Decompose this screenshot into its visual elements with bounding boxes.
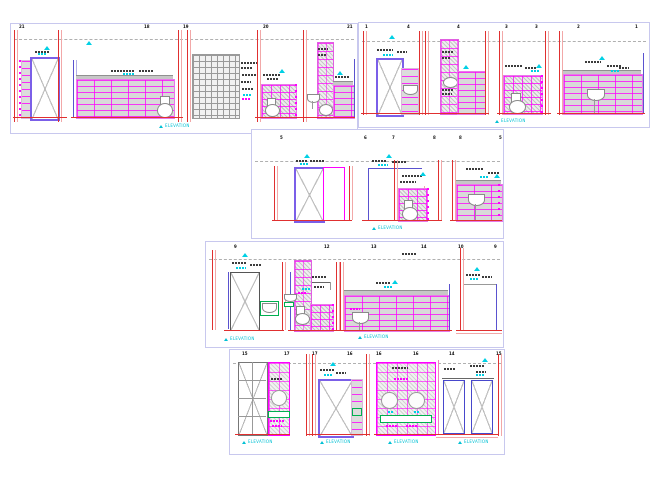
dimension-text <box>139 70 153 72</box>
grid-bubble: 5 <box>280 136 283 140</box>
washbasin <box>307 94 320 103</box>
caption-label: ELEVATION <box>248 440 273 444</box>
cad-elevation-sheet: 21 18 19 20 21 <box>0 0 650 500</box>
grid-bubble: 8 <box>459 136 462 140</box>
dimension-text <box>466 274 480 276</box>
grid-bubble: 18 <box>144 25 150 29</box>
dimension-text <box>402 175 422 177</box>
washbasin <box>403 85 418 95</box>
dimension-text <box>466 168 484 170</box>
elevation-caption: ELEVATION <box>159 124 190 128</box>
dimension-text <box>242 74 256 76</box>
partition-panel <box>323 167 345 221</box>
elevation-marker-icon <box>242 441 246 444</box>
level-label <box>38 53 47 55</box>
wall-axis-line <box>498 354 502 436</box>
wall-corner-line <box>438 360 439 434</box>
dimension-text <box>320 369 334 371</box>
caption-label: ELEVATION <box>165 124 190 128</box>
dimension-text <box>442 57 451 59</box>
grid-bubble: 4 <box>457 25 460 29</box>
wall-axis-line <box>312 354 316 436</box>
dimension-text <box>585 61 601 63</box>
floor-line <box>423 113 489 114</box>
level-marker-icon <box>337 71 343 75</box>
level-label <box>123 73 135 75</box>
floor-line <box>361 113 423 114</box>
mirror <box>381 392 398 409</box>
dimension-text <box>271 378 283 380</box>
grid-bubble: 9 <box>234 245 237 249</box>
magenta-dimension-text <box>394 378 408 380</box>
wall-axis-line <box>306 354 310 436</box>
level-label <box>300 163 308 165</box>
grid-bubble: 6 <box>364 136 367 140</box>
dimension-text <box>312 276 326 278</box>
caption-label: ELEVATION <box>394 440 419 444</box>
grid-bubble: 17 <box>284 352 290 356</box>
washbasin <box>468 194 485 206</box>
level-marker-icon <box>279 69 285 73</box>
tile-ticks <box>541 75 543 113</box>
dimension-text <box>336 372 346 374</box>
cabinet-divider <box>238 416 266 417</box>
dimension-text <box>335 76 349 78</box>
wall-edge-line <box>643 53 644 113</box>
basin-pedestal <box>594 99 595 113</box>
grid-bubble: 21 <box>19 25 25 29</box>
dimension-text <box>442 89 454 91</box>
dimension-text <box>397 51 407 53</box>
wall-edge-line <box>496 284 497 330</box>
cabinet <box>238 362 268 436</box>
elevation-marker-icon <box>159 125 163 128</box>
grid-bubble: 15 <box>242 352 248 356</box>
grid-bubble: 8 <box>433 136 436 140</box>
floor-line <box>224 330 284 331</box>
dimension-text <box>263 74 281 76</box>
magenta-dimension-text <box>298 292 306 294</box>
mirror <box>408 392 425 409</box>
level-label <box>383 54 393 56</box>
dimension-text <box>377 49 393 51</box>
dimension-text <box>250 264 262 266</box>
grid-bubble: 3 <box>505 25 508 29</box>
level-label <box>611 70 619 72</box>
caption-label: ELEVATION <box>378 226 403 230</box>
wall-axis-line <box>363 31 367 115</box>
floor-line <box>338 330 452 331</box>
elevation-panel-5: 15 17 17 16 16 16 14 15 ELEVATION <box>229 349 505 455</box>
toilet-bowl <box>443 77 458 88</box>
grid-bubble: 1 <box>635 25 638 29</box>
wall-axis-line <box>545 31 549 115</box>
level-marker-icon <box>389 35 395 39</box>
washbasin <box>262 303 277 313</box>
floor-line <box>255 117 301 118</box>
floor-line <box>288 330 338 331</box>
dimension-text <box>372 160 386 162</box>
shelf <box>268 411 290 418</box>
basin-pedestal <box>359 322 360 330</box>
toilet-bowl <box>265 104 280 117</box>
dimension-text <box>318 48 328 50</box>
dimension-text <box>619 67 629 69</box>
wall-axis-line <box>187 30 191 122</box>
elevation-panel-1: 21 18 19 20 21 <box>10 23 358 134</box>
elevation-caption: ELEVATION <box>320 440 351 444</box>
basin-pedestal <box>475 204 476 220</box>
washbasin <box>587 89 605 101</box>
level-marker-icon <box>386 154 392 158</box>
level-label <box>236 267 246 269</box>
elevation-caption: ELEVATION <box>388 440 419 444</box>
dimension-text <box>241 81 251 83</box>
dimension-text <box>444 368 456 370</box>
dimension-text <box>232 262 246 264</box>
elevation-panel-4: 9 12 13 14 10 9 <box>205 241 504 348</box>
caption-label: ELEVATION <box>326 440 351 444</box>
tile-grid-wall <box>192 54 240 119</box>
washbasin <box>284 294 297 302</box>
dimension-text <box>505 65 523 67</box>
elevation-caption: ELEVATION <box>358 335 389 339</box>
level-label <box>531 70 539 72</box>
level-label <box>480 176 488 178</box>
tile-wall <box>310 304 334 332</box>
wall-axis-line <box>366 354 370 436</box>
magenta-dimension-text <box>406 425 418 427</box>
wall-edge-line <box>228 272 229 329</box>
level-label <box>324 374 332 376</box>
wall-edge-line <box>354 59 355 117</box>
level-marker-icon <box>463 65 469 69</box>
caption-label: ELEVATION <box>364 335 389 339</box>
door <box>376 58 404 117</box>
elevation-marker-icon <box>358 336 362 339</box>
level-marker-icon <box>392 280 398 284</box>
elevation-caption: ELEVATION <box>224 337 255 341</box>
floor-line <box>272 220 352 221</box>
grid-bubble: 5 <box>499 136 502 140</box>
level-marker-icon <box>536 64 542 68</box>
door <box>294 167 325 223</box>
toilet-bowl <box>295 313 310 325</box>
elevation-caption: ELEVATION <box>458 440 489 444</box>
dimension-text <box>310 160 324 162</box>
level-marker-icon <box>494 174 500 178</box>
grid-bubble: 14 <box>449 352 455 356</box>
elevation-marker-icon <box>224 338 228 341</box>
shelf <box>380 415 432 423</box>
wall-axis-line <box>419 31 423 115</box>
caption-label: ELEVATION <box>464 440 489 444</box>
grid-bubble: 16 <box>376 352 382 356</box>
floor-line <box>436 434 498 438</box>
dimension-text <box>296 160 308 162</box>
level-marker-icon <box>599 56 605 60</box>
wall-axis-line <box>178 30 182 122</box>
elevation-marker-icon <box>320 441 324 444</box>
ceiling-dash-line <box>209 259 500 260</box>
magenta-dimension-text <box>350 308 360 310</box>
dimension-text <box>402 253 416 255</box>
grid-bubble: 1 <box>365 25 368 29</box>
dimension-leader <box>312 282 330 283</box>
shelf <box>352 408 362 416</box>
grid-bubble: 7 <box>392 136 395 140</box>
magenta-dimension-text <box>270 420 284 422</box>
wall-axis-line <box>303 30 307 122</box>
cabinet-divider <box>238 380 266 381</box>
dimension-text <box>242 88 254 90</box>
grid-bubble: 16 <box>413 352 419 356</box>
elevation-caption: ELEVATION <box>495 119 526 123</box>
grid-bubble: 4 <box>407 25 410 29</box>
level-marker-icon <box>474 267 480 271</box>
basin-pedestal <box>312 101 313 109</box>
dimension-text <box>314 286 324 288</box>
tile-wall <box>457 71 486 115</box>
elevation-caption: ELEVATION <box>242 440 273 444</box>
dimension-leader <box>330 282 331 290</box>
wall-edge-line <box>464 284 496 285</box>
door <box>471 380 493 434</box>
wall-axis-line <box>274 166 278 220</box>
door-head-line <box>442 378 494 379</box>
toilet-bowl <box>157 103 173 118</box>
level-label <box>470 278 478 280</box>
tile-ticks <box>427 188 429 220</box>
grid-bubble: 19 <box>183 25 189 29</box>
dimension-text <box>241 67 253 69</box>
magenta-dimension-text <box>272 425 282 427</box>
magenta-dimension-text <box>386 425 398 427</box>
level-marker-icon <box>304 154 310 158</box>
grid-bubble: 14 <box>421 245 427 249</box>
elevation-marker-icon <box>458 441 462 444</box>
grid-bubble: 16 <box>347 352 353 356</box>
tile-ticks <box>498 184 500 220</box>
wall-axis-line <box>460 248 461 330</box>
wall-edge-line <box>449 284 450 330</box>
caption-label: ELEVATION <box>501 119 526 123</box>
level-marker-icon <box>420 172 426 176</box>
level-marker-icon <box>330 362 336 366</box>
dimension-text <box>470 365 484 367</box>
floor-line <box>497 113 551 114</box>
dimension-text <box>442 51 453 53</box>
dimension-text <box>111 70 135 72</box>
tile-ticks <box>332 304 334 330</box>
grid-bubble: 12 <box>324 245 330 249</box>
floor-line <box>392 220 442 221</box>
elevation-marker-icon <box>388 441 392 444</box>
floor-line <box>456 330 502 334</box>
level-marker-icon <box>86 41 92 45</box>
level-marker-icon <box>242 253 248 257</box>
floor-line <box>301 117 355 118</box>
mirror <box>271 390 287 406</box>
grid-bubble: 2 <box>577 25 580 29</box>
wall-axis-line <box>58 30 62 122</box>
dimension-text <box>318 54 326 56</box>
dimension-text <box>241 62 257 64</box>
floor-line <box>306 434 370 435</box>
floor-line <box>13 117 67 118</box>
toilet-bowl <box>319 104 333 116</box>
cabinet-divider <box>238 398 266 399</box>
tile-wall <box>333 85 355 119</box>
wall-axis-line <box>212 250 216 330</box>
caption-label: ELEVATION <box>230 337 255 341</box>
elevation-caption: ELEVATION <box>372 226 403 230</box>
door <box>30 57 60 121</box>
toilet-bowl <box>509 100 526 114</box>
wall-axis-line <box>438 160 442 220</box>
level-label <box>414 411 420 413</box>
elevation-marker-icon <box>372 227 376 230</box>
magenta-dimension-text <box>242 98 250 100</box>
dimension-text <box>476 371 486 373</box>
wall-edge-line <box>368 168 369 220</box>
wall-axis-line <box>425 31 429 115</box>
tile-ticks <box>295 84 297 117</box>
wall-axis-line <box>485 31 489 115</box>
level-label <box>476 374 484 376</box>
dimension-text <box>400 181 416 183</box>
level-marker-icon <box>482 358 488 362</box>
elevation-panel-2: 1 4 4 3 3 2 1 <box>358 22 650 128</box>
dimension-text <box>376 282 390 284</box>
door <box>230 272 260 331</box>
level-marker-icon <box>44 46 50 50</box>
level-label <box>384 286 392 288</box>
grid-bubble: 21 <box>347 25 353 29</box>
grid-bubble: 13 <box>371 245 377 249</box>
elevation-marker-icon <box>495 120 499 123</box>
grid-bubble: 3 <box>535 25 538 29</box>
dimension-text <box>482 276 492 278</box>
dimension-text <box>392 367 408 369</box>
level-label <box>243 94 251 96</box>
level-label <box>302 288 310 290</box>
door <box>443 380 465 434</box>
floor-line <box>71 117 183 118</box>
grid-bubble: 20 <box>263 25 269 29</box>
dimension-text <box>267 78 279 80</box>
shelf <box>284 302 294 307</box>
level-label <box>388 411 394 413</box>
floor-line <box>235 434 290 435</box>
washbasin <box>352 312 369 324</box>
door <box>318 379 354 438</box>
toilet-bowl <box>402 207 418 221</box>
wall-axis-line <box>463 248 464 330</box>
floor-line <box>450 220 502 221</box>
wall-axis-line <box>14 30 18 122</box>
ceiling-dash-line <box>362 41 646 42</box>
floor-line <box>374 434 436 435</box>
elevation-panel-3: 5 6 7 8 8 5 <box>251 129 504 239</box>
dimension-text <box>442 93 452 95</box>
grid-bubble: 9 <box>494 245 497 249</box>
wall-axis-line <box>349 166 353 220</box>
level-label <box>378 164 388 166</box>
floor-line <box>557 113 645 114</box>
